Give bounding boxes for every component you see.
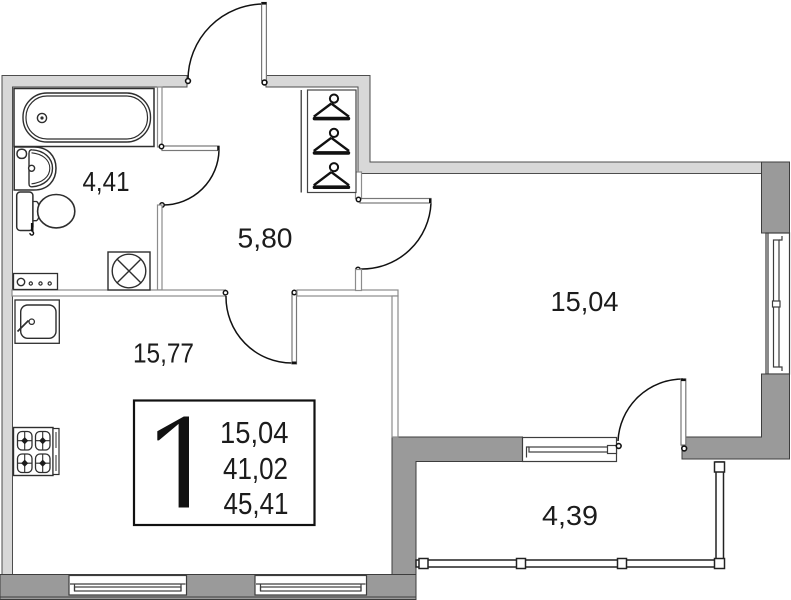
svg-text:4,39: 4,39 [542, 500, 598, 531]
svg-text:4,41: 4,41 [83, 166, 130, 197]
svg-text:45,41: 45,41 [224, 487, 289, 521]
svg-text:5,80: 5,80 [238, 223, 293, 254]
svg-text:15,04: 15,04 [551, 286, 619, 317]
svg-text:41,02: 41,02 [223, 452, 288, 486]
svg-text:15,77: 15,77 [133, 338, 194, 369]
svg-text:15,04: 15,04 [220, 416, 289, 450]
